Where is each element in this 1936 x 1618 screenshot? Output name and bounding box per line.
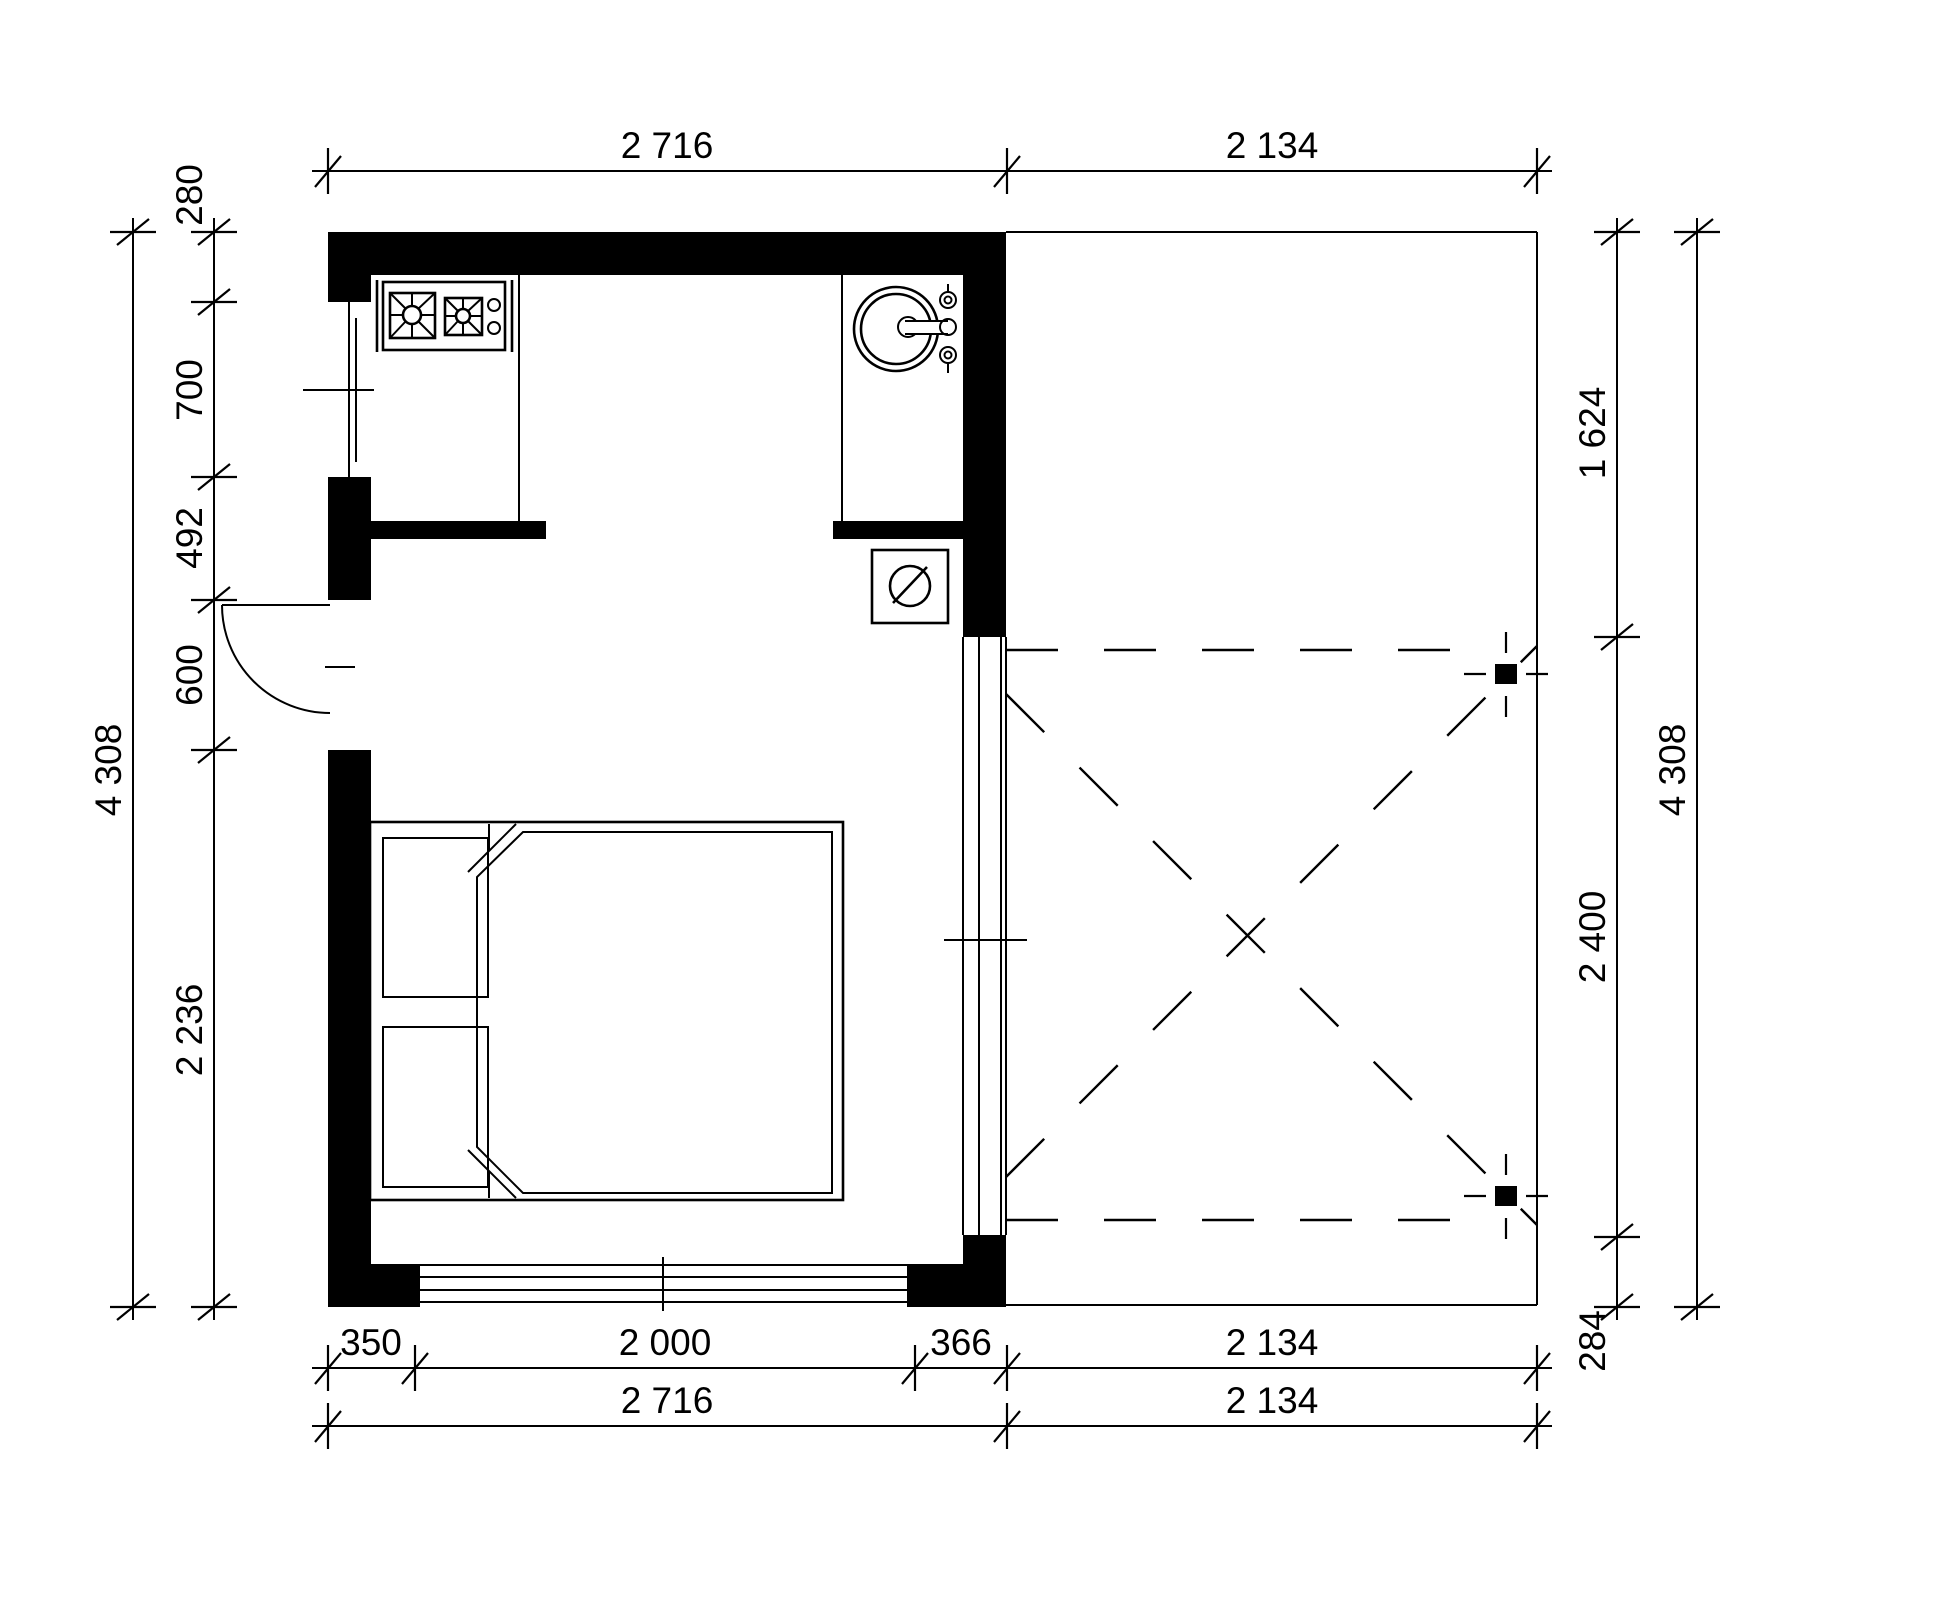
walls [328, 232, 1006, 1307]
dim-right-1624: 1 624 [1572, 387, 1613, 480]
entry-door [222, 600, 371, 750]
sliding-glass-door [944, 637, 1027, 1235]
deck-post-top [1464, 632, 1548, 717]
dim-bot2-2134: 2 134 [1226, 1380, 1319, 1421]
wall-top [328, 232, 1006, 275]
deck-post-bottom [1464, 1154, 1548, 1239]
dim-left-492: 492 [169, 507, 210, 569]
dimension-bottom-row1: 350 2 000 366 2 134 [312, 1322, 1552, 1391]
dim-bot2-2716: 2 716 [621, 1380, 714, 1421]
deck-brace-1 [1006, 694, 1537, 1225]
dim-left-total-4308: 4 308 [88, 724, 129, 817]
mattress [477, 832, 832, 1193]
dim-bot1-350: 350 [340, 1322, 402, 1363]
dim-bot1-366: 366 [930, 1322, 992, 1363]
kitchen [377, 275, 956, 623]
wall-right-upper [963, 232, 1006, 637]
dim-top-2134: 2 134 [1226, 125, 1319, 166]
deck-brace-2 [1006, 646, 1537, 1177]
dimension-right-inner: 1 624 2 400 284 [1572, 218, 1640, 1372]
dim-left-700: 700 [169, 359, 210, 421]
blanket-fold-bottom [468, 1150, 516, 1198]
pillow-top [383, 838, 488, 997]
partition-stub-right [833, 521, 963, 539]
dim-top-2716: 2 716 [621, 125, 714, 166]
dim-right-2400: 2 400 [1572, 891, 1613, 984]
dim-left-280: 280 [169, 164, 210, 226]
sink-icon [854, 284, 956, 373]
door-swing-arc [222, 605, 330, 713]
dimension-left-inner: 280 700 492 600 2 236 [169, 164, 237, 1320]
bed-frame [370, 822, 843, 1200]
double-bed [370, 822, 843, 1200]
pillow-bottom [383, 1027, 488, 1187]
dim-bot1-2000: 2 000 [619, 1322, 712, 1363]
dim-left-600: 600 [169, 644, 210, 706]
bottom-window [420, 1257, 907, 1311]
dim-bot1-2134: 2 134 [1226, 1322, 1319, 1363]
floor-plan-page: 2 716 2 134 350 2 000 366 2 134 2 716 2 … [0, 0, 1936, 1618]
deck [1006, 232, 1548, 1305]
dimension-top: 2 716 2 134 [312, 125, 1552, 194]
dim-left-2236: 2 236 [169, 984, 210, 1077]
left-window [303, 302, 374, 477]
partition-stub-left [371, 521, 546, 539]
dim-right-total-4308: 4 308 [1652, 724, 1693, 817]
dim-right-284: 284 [1572, 1310, 1613, 1372]
dimension-left-outer: 4 308 [88, 218, 156, 1320]
dimension-right-outer: 4 308 [1652, 218, 1720, 1320]
washing-machine-icon [872, 550, 948, 623]
blanket-fold-top [468, 824, 516, 872]
dimension-bottom-row2: 2 716 2 134 [312, 1380, 1552, 1449]
stove-icon [377, 280, 512, 352]
floor-plan-svg: 2 716 2 134 350 2 000 366 2 134 2 716 2 … [0, 0, 1936, 1618]
